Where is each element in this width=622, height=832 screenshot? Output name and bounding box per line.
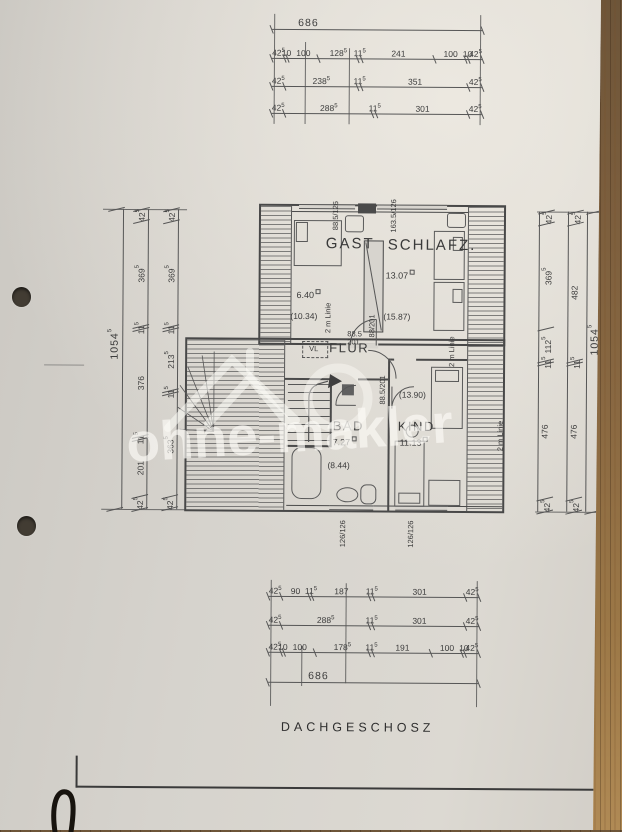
window-dim-gast: 88.5/126 — [332, 201, 340, 230]
photo-of-floor-plan: { "document": { "floor_label": "DACHGESC… — [0, 0, 622, 830]
paper-sheet: 686 42510100128511524110010425 425238511… — [0, 0, 601, 830]
paper-clip-curl — [20, 752, 140, 832]
plan-annotations: GASTSCHLAFZ.FLURBADKIND6.40(10.34)13.07(… — [0, 0, 603, 832]
window-dim-kind: 126/126 — [407, 521, 415, 548]
hole-punch-top — [12, 287, 31, 307]
room-area2-schlafz: (15.87) — [383, 313, 410, 322]
vl-label: VL — [309, 345, 318, 353]
room-area2-kind: (13.90) — [399, 391, 426, 400]
floor-caption: DACHGESCHOSZ — [281, 720, 435, 735]
room-area-schlafz: 13.07 — [386, 270, 415, 281]
two-meter-line-schlafz: 2 m Linie — [448, 336, 456, 366]
room-area-gast: 6.40 — [296, 289, 320, 300]
room-label-kind: KIND — [398, 420, 435, 433]
door-dim-kind: 88.5/201 — [379, 375, 387, 404]
door-dim-flur-height: 201 — [347, 338, 360, 346]
two-meter-line-kind: 2 m Linie — [497, 421, 505, 451]
window-dim-schlafz: 163.5/126 — [390, 199, 398, 232]
room-label-bad: BAD — [333, 419, 364, 432]
room-area-bad: 7.27 — [333, 436, 357, 447]
room-area2-gast: (10.34) — [290, 312, 317, 321]
room-area2-bad: (8.44) — [327, 461, 349, 470]
hole-punch-bottom — [17, 516, 36, 536]
floor-plan-drawing: 686 42510100128511524110010425 425238511… — [0, 0, 603, 832]
window-dim-bad: 126/126 — [339, 520, 347, 547]
two-meter-line-gast: 2 m Linie — [324, 303, 332, 333]
room-label-schlafz: SCHLAFZ. — [388, 238, 477, 254]
room-area-kind: 11.13 — [400, 437, 428, 448]
room-label-gast: GAST — [326, 236, 375, 251]
door-dim-gast: 88/201 — [368, 314, 376, 337]
